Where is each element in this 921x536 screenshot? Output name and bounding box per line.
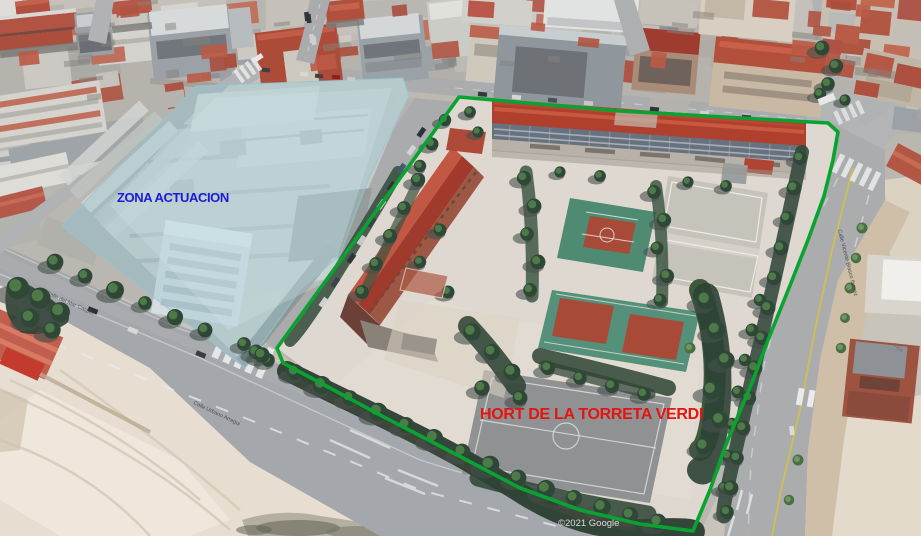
svg-text:ZONA ACTUACION: ZONA ACTUACION — [117, 190, 229, 205]
svg-text:©2021 Google: ©2021 Google — [558, 518, 619, 529]
svg-text:HORT DE LA TORRETA VERDI: HORT DE LA TORRETA VERDI — [480, 406, 703, 423]
